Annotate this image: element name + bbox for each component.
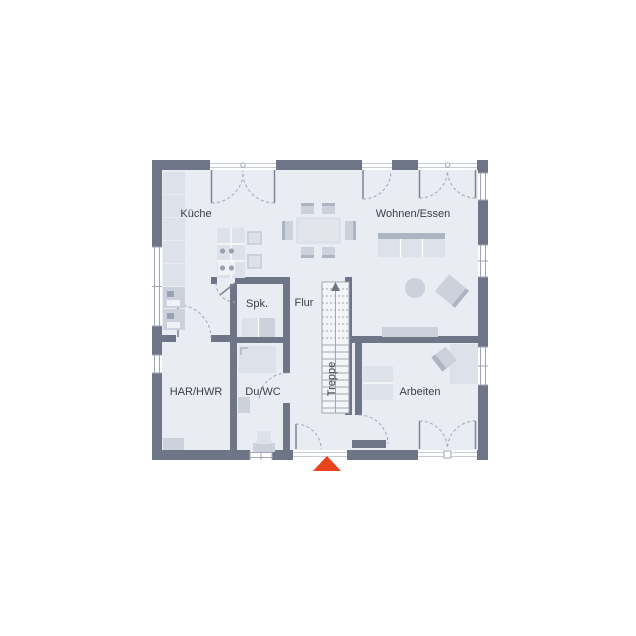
room-label-flur: Flur xyxy=(295,297,314,309)
room-label-har-hwr: HAR/HWR xyxy=(170,386,223,398)
sideboard-icon xyxy=(382,327,438,337)
room-label-treppe: Treppe xyxy=(326,362,338,396)
stove-island-icon xyxy=(217,228,245,278)
room-label-arbeiten: Arbeiten xyxy=(400,386,441,398)
sofa-icon xyxy=(378,233,445,257)
kitchen-counter-icon xyxy=(163,172,185,330)
window-kitchen-left xyxy=(152,247,162,326)
coffee-table-icon xyxy=(405,278,425,298)
floor-plan: Küche Wohnen/Essen Spk. Flur Treppe HAR/… xyxy=(0,0,636,636)
window-har-left xyxy=(152,355,162,373)
room-label-du-wc: Du/WC xyxy=(245,386,281,398)
pantry-shelf-icon xyxy=(242,318,275,337)
window-right-top xyxy=(478,173,488,200)
shower-icon xyxy=(239,346,276,373)
room-label-spk: Spk. xyxy=(246,298,268,310)
floor-plan-page: Küche Wohnen/Essen Spk. Flur Treppe HAR/… xyxy=(0,0,636,636)
office-desk-icon xyxy=(450,344,478,384)
washbasin-icon xyxy=(238,397,250,413)
room-label-kueche: Küche xyxy=(180,208,211,220)
office-cabinet-icon xyxy=(363,366,393,400)
window-living-right xyxy=(478,245,488,277)
har-appliance-icon xyxy=(163,438,184,450)
room-label-wohnen-essen: Wohnen/Essen xyxy=(376,208,450,220)
window-office-right xyxy=(478,347,488,385)
